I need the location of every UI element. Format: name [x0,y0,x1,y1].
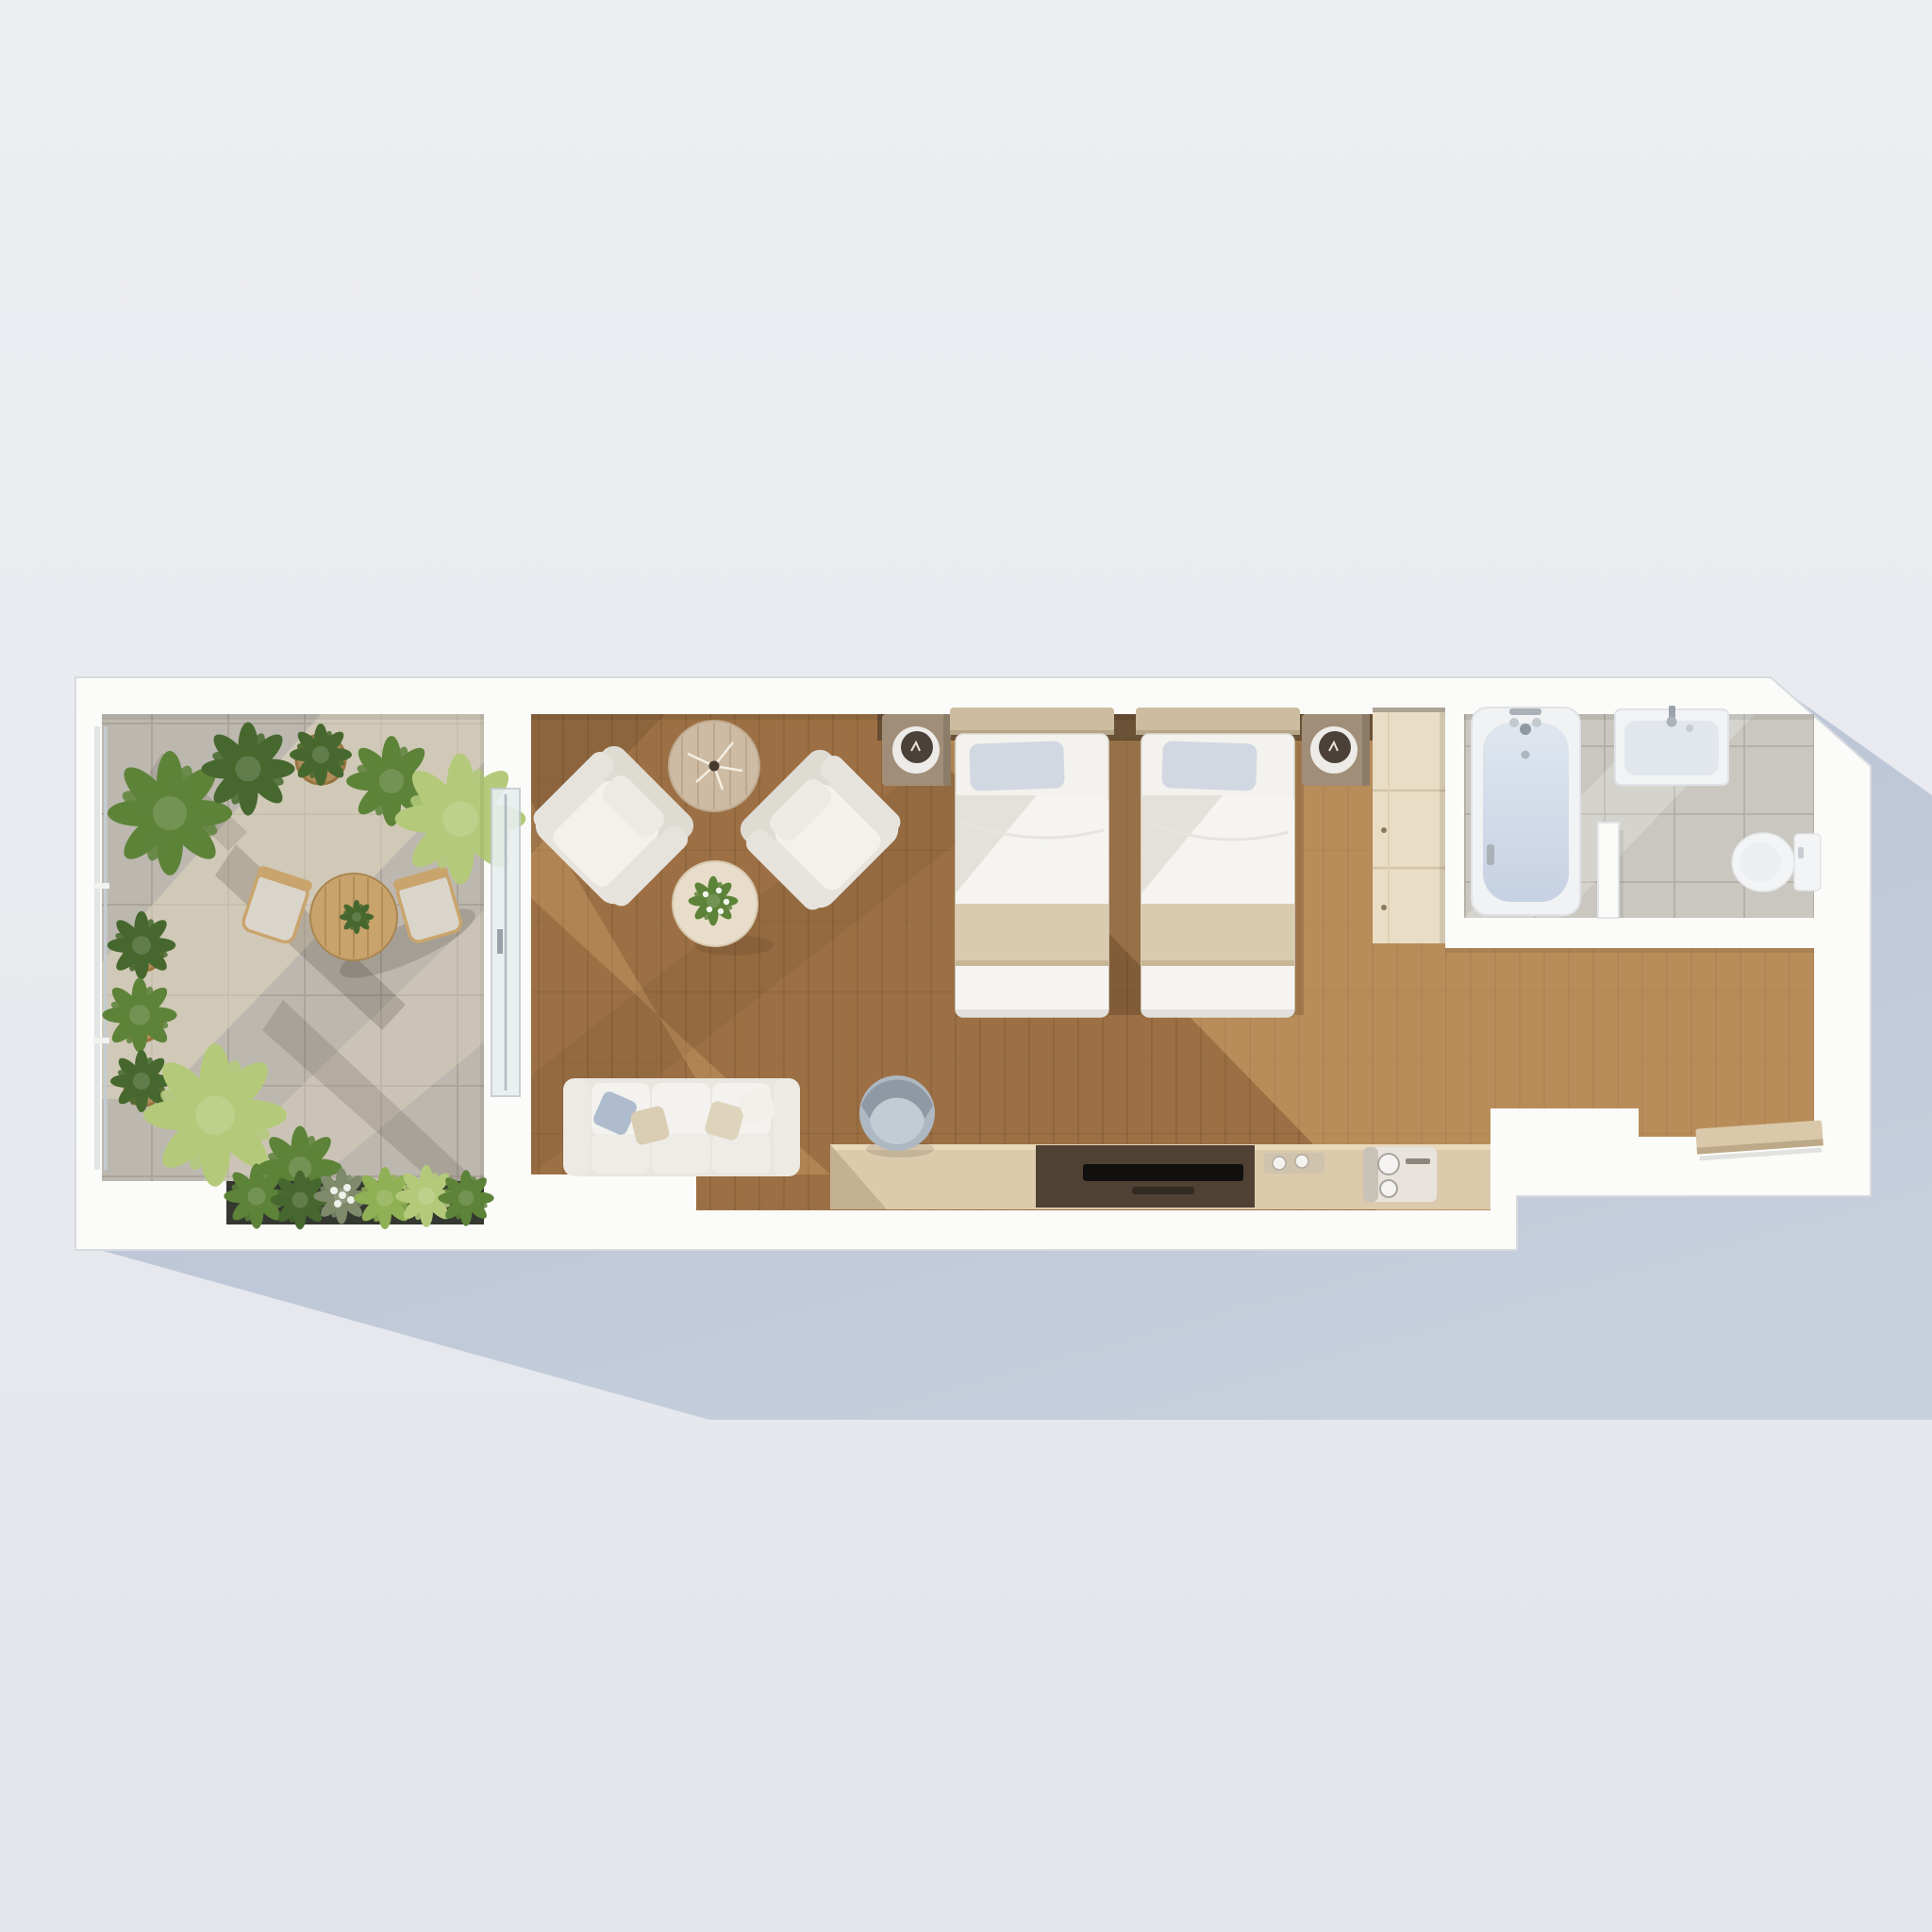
sofa [563,1078,800,1176]
nightstand-left [882,714,951,786]
room-terrace [93,714,525,1229]
washbasin [1615,706,1728,785]
screenshot-root [0,0,1932,1932]
nightstand-right [1302,714,1370,786]
television [1083,1164,1243,1181]
tray-with-cups [1264,1153,1324,1174]
tv-handle [1132,1187,1194,1194]
twin-bed-left [950,708,1114,1017]
coffee-machine [1363,1147,1437,1202]
floor-plan-scene [0,0,1932,1932]
twin-bed-right [1136,708,1300,1017]
toilet [1732,833,1821,891]
sliding-glass-door [491,789,520,1096]
bathtub [1472,708,1580,915]
shower-partition [1598,823,1624,918]
table-plant [340,900,374,934]
room-bathroom [1464,706,1821,918]
side-table [669,721,759,811]
desk-chair [859,1075,935,1158]
terrace-wall-shadow [102,714,484,720]
wardrobe [1373,708,1445,943]
terrace-right-wall-shade [480,714,484,1181]
